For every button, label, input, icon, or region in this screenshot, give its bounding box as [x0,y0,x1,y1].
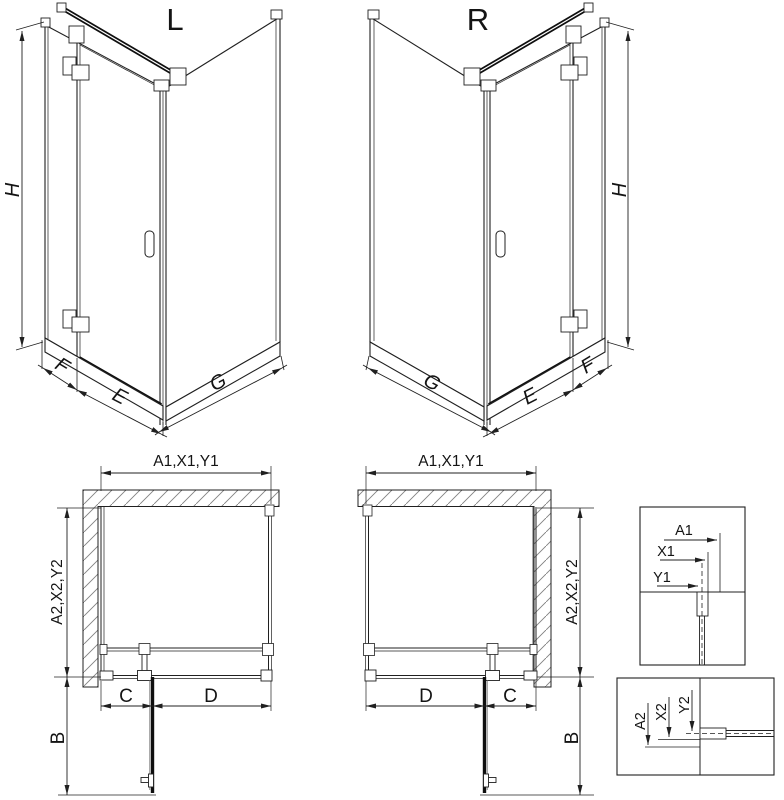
iso-view-left: L H F E G [2,2,287,437]
dim-label-d-right: D [419,686,433,707]
detail-view-top: A1 X1 Y1 [640,507,745,665]
iso-view-right: R H F E G [363,2,634,437]
plan-geometry-left [100,505,274,793]
plan-view-left: A1,X1,Y1 A2,X2,Y2 C D B [48,453,279,795]
variant-label-right: R [467,2,489,37]
plan-geometry-right-mirrored [363,505,537,793]
variant-label-left: L [166,2,183,37]
dim-label-y1-detail: Y1 [653,570,671,586]
dim-label-a2-detail: A2 [633,712,649,730]
dim-label-h-right: H [609,182,631,197]
dim-label-b-right: B [562,732,583,745]
dim-label-y2-detail: Y2 [677,696,693,714]
dim-label-a1-detail: A1 [675,523,693,539]
dim-label-a1-left: A1,X1,Y1 [153,453,219,470]
dim-label-a1-right: A1,X1,Y1 [418,453,484,470]
dim-label-d-left: D [204,686,218,707]
dim-label-b-left: B [48,732,69,745]
wall-hatch-left [83,490,279,687]
dim-label-a2-right: A2,X2,Y2 [564,559,581,625]
dim-label-x2-detail: X2 [654,703,670,721]
dim-label-a2-left: A2,X2,Y2 [49,559,66,625]
plan-dims-right [366,466,594,795]
detail-view-bottom: A2 X2 Y2 [617,678,774,775]
wall-hatch-right [358,490,551,687]
plan-view-right: A1,X1,Y1 A2,X2,Y2 D C B [358,453,594,795]
technical-drawing-canvas: L H F E G R H F E G A1,X1,Y1 [0,0,784,800]
dim-label-c-left: C [119,686,133,707]
wall-profile-top [697,592,708,616]
drawing-page: L H F E G R H F E G A1,X1,Y1 [0,0,784,800]
dim-label-x1-detail: X1 [657,544,675,560]
dim-label-h-left: H [2,182,24,197]
dim-label-c-right: C [503,686,517,707]
